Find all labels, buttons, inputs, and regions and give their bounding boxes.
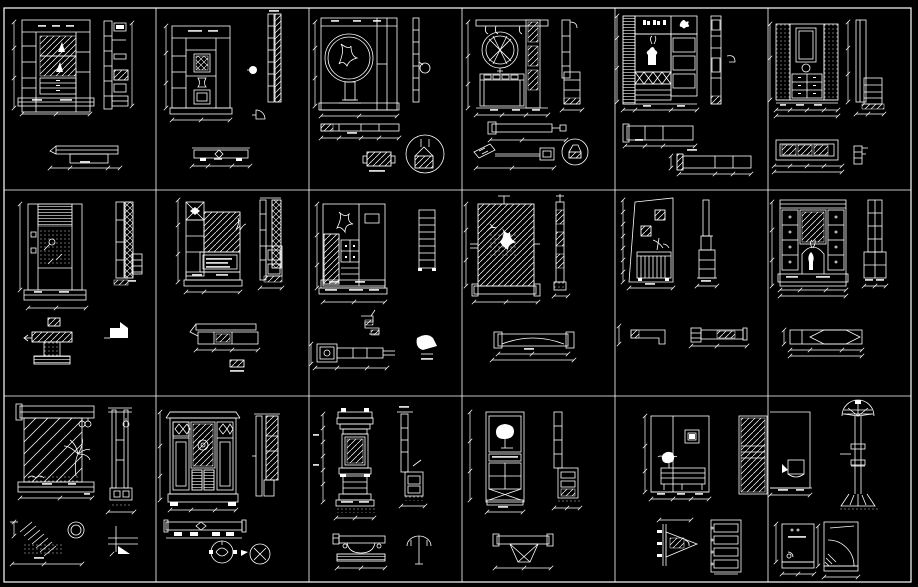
dim-text-glyph — [208, 30, 218, 32]
cad-rect — [338, 412, 372, 418]
cad-rect — [627, 126, 693, 140]
dimension-line — [643, 414, 647, 494]
dimension-line — [617, 324, 621, 346]
cad-rect — [408, 486, 420, 493]
hatch-diagonal — [711, 96, 721, 104]
cad-rect — [343, 429, 367, 434]
cad-fill — [813, 77, 816, 78]
hatch-dots — [554, 282, 566, 290]
cad-line — [825, 562, 829, 566]
cad-rect — [712, 20, 720, 30]
hatch-diagonal — [415, 156, 433, 168]
cad-fill — [209, 550, 213, 554]
cad-path — [485, 26, 488, 34]
cad-silhouette — [190, 207, 200, 215]
hatch-dots — [26, 474, 80, 482]
cad-fill — [190, 532, 198, 536]
drawing-cell-corner-display-unit[interactable] — [176, 198, 284, 372]
hatch-dots — [44, 342, 60, 356]
hatch-dots — [110, 502, 132, 507]
dimension-line — [466, 20, 470, 110]
dimension-line — [552, 294, 570, 298]
cad-rect — [671, 34, 697, 96]
dim-text-glyph — [492, 456, 518, 458]
dimension-line — [772, 170, 844, 174]
cad-line — [24, 418, 36, 430]
dim-text-glyph — [68, 483, 76, 485]
dimension-line — [315, 202, 319, 290]
cad-fill — [813, 85, 816, 86]
dim-text-glyph — [645, 283, 655, 285]
cad-rect — [691, 328, 701, 342]
cad-path — [788, 474, 804, 477]
dim-text-glyph — [192, 274, 202, 276]
cad-circle — [711, 563, 713, 565]
cad-fill — [643, 20, 646, 25]
hatch-dots — [38, 228, 72, 266]
cad-rect — [492, 124, 552, 132]
hatch-diagonal — [371, 330, 379, 335]
dimension-line — [474, 113, 550, 117]
cad-circle — [68, 522, 84, 538]
cad-fill — [657, 21, 660, 25]
dimension-line — [768, 493, 812, 497]
hatch-dots — [838, 506, 878, 510]
cad-rect — [114, 491, 120, 497]
hatch-diagonal — [32, 332, 72, 342]
cad-circle — [343, 544, 347, 548]
cad-fill — [638, 278, 642, 281]
hatch-diagonal — [862, 104, 884, 109]
hatch-diagonal — [556, 254, 564, 268]
cad-rect — [176, 442, 186, 486]
dimension-line — [10, 562, 84, 566]
dim-text-glyph — [206, 266, 230, 268]
dimension-line — [468, 410, 472, 502]
cad-rect — [714, 560, 738, 568]
cad-rect — [186, 220, 204, 276]
cad-fill — [200, 158, 206, 161]
cad-path — [810, 330, 860, 344]
cad-silhouette — [782, 464, 788, 473]
dimension-line — [176, 198, 180, 284]
hatch-diagonal — [561, 489, 575, 496]
cad-circle — [835, 246, 837, 248]
cad-rect — [782, 562, 814, 568]
cad-rect — [242, 520, 246, 532]
dimension-line — [621, 108, 699, 112]
cad-rect — [173, 422, 189, 490]
cad-silhouette — [241, 550, 248, 556]
cad-circle — [791, 529, 793, 531]
drawing-cell-four-door-wardrobe[interactable] — [158, 410, 280, 564]
drawing-cell-dresser-mirror[interactable] — [768, 20, 886, 174]
hatch-diagonal — [802, 212, 824, 242]
dim-text-glyph — [349, 289, 363, 291]
cad-sheet[interactable] — [0, 0, 918, 587]
cad-path — [629, 198, 673, 282]
cad-rect — [711, 16, 721, 104]
cad-path — [497, 68, 503, 73]
hatch-diagonal — [564, 98, 580, 104]
cad-fill — [813, 93, 816, 94]
dim-text-glyph — [677, 493, 685, 495]
cad-rect — [339, 468, 371, 474]
dim-tick — [110, 552, 114, 556]
cad-rect — [220, 442, 230, 486]
hatch-diagonal — [569, 152, 581, 158]
cad-fill — [56, 90, 60, 91]
cad-fill — [665, 278, 669, 281]
cad-rect — [851, 460, 865, 465]
drawing-cell-trellis-screen-palm[interactable] — [10, 404, 138, 566]
cad-path — [727, 56, 735, 62]
cad-rect — [474, 286, 536, 294]
dim-text-glyph — [355, 281, 365, 283]
drawing-cell-wall-unit-niche[interactable] — [615, 14, 753, 176]
cad-rect — [851, 444, 865, 449]
dimension-line — [12, 20, 16, 110]
cad-rect — [493, 75, 500, 79]
cad-rect — [365, 214, 379, 223]
hatch-dots — [490, 234, 516, 258]
dim-text-glyph — [695, 493, 703, 495]
cad-line — [830, 526, 854, 528]
cad-rect — [497, 536, 549, 544]
cad-rect — [651, 416, 709, 492]
dim-text-glyph — [369, 289, 379, 291]
cad-rect — [413, 18, 419, 102]
hatch-ribs — [337, 554, 385, 561]
dimension-line — [130, 21, 134, 108]
dimension-line — [496, 352, 570, 356]
cad-rect — [778, 274, 848, 282]
cad-line — [24, 418, 48, 442]
hatch-diagonal — [230, 360, 244, 367]
dimension-line — [822, 575, 860, 579]
hatch-diagonal — [275, 14, 281, 102]
cad-rect — [701, 236, 711, 250]
cad-rect — [112, 410, 116, 488]
dim-text-glyph — [796, 104, 804, 106]
dimension-line — [782, 328, 786, 346]
cad-rect — [712, 58, 720, 72]
dimension-line — [788, 348, 864, 352]
hatch-diagonal — [782, 145, 796, 155]
cad-fill — [341, 408, 346, 412]
hatch-diagonal — [528, 46, 538, 66]
cad-rect — [196, 324, 256, 330]
dimension-line — [309, 342, 313, 366]
hatch-diagonal — [741, 418, 765, 492]
cad-rect — [673, 38, 695, 52]
hatch-diagonal — [655, 210, 665, 220]
drawing-cell-cabinet-plant-ladder[interactable] — [309, 202, 437, 370]
hatch-dots — [776, 24, 790, 100]
dimension-line — [184, 290, 242, 294]
hatch-diagonal — [324, 234, 339, 284]
cad-rect — [268, 14, 274, 102]
cad-line — [850, 495, 854, 505]
cad-path — [510, 544, 538, 562]
cad-fill — [236, 158, 242, 161]
cad-rect — [560, 125, 566, 131]
cad-path — [347, 543, 375, 553]
drawing-cell-pedestal-column[interactable] — [313, 406, 431, 570]
cad-rect — [340, 424, 370, 429]
hatch-diagonal — [114, 280, 128, 285]
dimension-line — [313, 366, 389, 370]
cad-rect — [864, 78, 882, 104]
dim-text-glyph — [52, 25, 60, 27]
cad-rect — [363, 156, 367, 163]
cad-fill — [653, 20, 656, 25]
cad-circle — [328, 37, 370, 79]
dim-text-glyph — [60, 99, 72, 101]
cad-rect — [854, 146, 862, 164]
dimension-line — [485, 510, 525, 514]
dimension-line — [490, 358, 576, 362]
hatch-diagonal — [798, 145, 812, 155]
cad-circle — [789, 246, 791, 248]
cad-path — [215, 150, 223, 158]
cad-path — [337, 212, 353, 232]
dimension-line — [474, 166, 556, 170]
cad-path — [569, 145, 581, 152]
dimension-line — [190, 164, 252, 168]
hatch-diagonal — [216, 334, 230, 342]
cad-rect — [543, 151, 551, 157]
dim-text-glyph — [788, 536, 806, 538]
dimension-line — [319, 136, 401, 140]
dim-text-glyph — [214, 158, 222, 160]
dim-text-glyph — [490, 109, 498, 111]
cad-fill — [798, 85, 801, 86]
cad-path — [175, 424, 183, 434]
drawing-cell-hall-stand-wreath[interactable] — [466, 20, 588, 170]
cad-path — [196, 522, 206, 530]
dim-text-glyph — [796, 489, 804, 491]
dim-text-glyph — [32, 99, 42, 101]
cad-silhouette — [417, 335, 437, 350]
cad-line — [826, 558, 832, 564]
drawing-cell-frosted-door-partition[interactable] — [18, 202, 142, 364]
dimension-line — [18, 202, 22, 292]
hatch-diagonal — [266, 416, 278, 480]
cad-circle — [711, 539, 713, 541]
cad-rect — [498, 334, 568, 346]
cad-rect — [502, 75, 509, 79]
hatch-diagonal — [48, 318, 60, 326]
hatch-diagonal — [40, 56, 76, 76]
cad-fill — [353, 256, 355, 258]
cad-rect — [114, 84, 126, 92]
hatch-diagonal — [556, 232, 564, 246]
dim-text-glyph — [524, 348, 534, 350]
dimension-line — [560, 108, 584, 112]
cad-rect — [168, 494, 238, 502]
dim-text-glyph — [814, 104, 822, 106]
cad-fill — [233, 550, 237, 554]
cad-rect — [260, 200, 266, 280]
hatch-diagonal — [40, 36, 76, 56]
cad-rect — [788, 460, 804, 474]
dimension-line — [774, 522, 778, 564]
dim-text-glyph — [313, 464, 319, 466]
cad-rect — [799, 31, 813, 59]
cad-line — [862, 495, 866, 505]
hatch-diagonal — [528, 70, 538, 90]
cad-rect — [256, 416, 262, 496]
dim-text-glyph — [230, 370, 244, 372]
hatch-cross — [196, 56, 208, 70]
cad-rect — [703, 200, 709, 236]
cad-line — [371, 310, 375, 316]
cad-path — [216, 548, 228, 556]
cad-circle — [835, 216, 837, 218]
cad-silhouette — [808, 252, 813, 270]
drawing-cell-chest-arch-niche[interactable] — [770, 200, 888, 358]
cad-circle — [835, 261, 837, 263]
dimension-line — [464, 202, 468, 288]
dim-text-glyph — [677, 105, 685, 107]
cad-path — [651, 36, 656, 44]
cad-rect — [743, 328, 747, 340]
cad-fill — [345, 245, 347, 247]
drawing-cell-moon-circle-panel[interactable] — [313, 18, 444, 173]
cad-fill — [432, 268, 436, 271]
drawing-cell-panel-cabinet-inset[interactable] — [164, 10, 281, 168]
hatch-dots — [824, 24, 838, 100]
dimension-line — [488, 138, 568, 142]
dim-text-glyph — [66, 25, 74, 27]
cad-rect — [487, 500, 523, 505]
dimension-line — [194, 348, 260, 352]
drawing-cell-glass-display-cabinet[interactable] — [12, 20, 134, 170]
cad-path — [570, 22, 577, 28]
cad-rect — [184, 280, 242, 286]
cad-circle — [711, 527, 713, 529]
dim-text-glyph — [512, 109, 520, 111]
cad-fill — [226, 532, 234, 536]
dimension-line — [627, 286, 675, 290]
cad-path — [519, 26, 522, 34]
dimension-line — [158, 410, 162, 502]
cad-canvas[interactable] — [0, 0, 918, 587]
drawing-cell-hatched-screen-plant[interactable] — [464, 194, 576, 362]
cad-rect — [197, 93, 207, 101]
drawing-cell-leaning-mirror-radiator[interactable] — [617, 198, 749, 348]
dimension-line — [816, 524, 820, 568]
cad-circle — [789, 231, 791, 233]
cad-rect — [132, 254, 142, 274]
cad-path — [828, 540, 854, 566]
dim-text-glyph — [498, 506, 508, 508]
cad-path — [339, 44, 357, 66]
cad-rect — [623, 124, 629, 142]
cad-line — [510, 544, 530, 562]
cad-rect — [345, 82, 355, 100]
cad-rect — [635, 84, 671, 100]
cad-rect — [856, 20, 866, 102]
dim-text-glyph — [38, 25, 46, 27]
hatch-diagonal — [365, 320, 373, 325]
cad-circle — [835, 231, 837, 233]
dimension-line — [493, 566, 553, 570]
hatch-diagonal — [641, 226, 651, 236]
cad-rect — [337, 348, 383, 358]
hatch-ribs — [623, 16, 635, 104]
cad-rect — [320, 347, 334, 359]
cad-circle — [787, 554, 791, 558]
drawing-cell-corner-coat-rack[interactable] — [768, 400, 878, 579]
dimension-line — [649, 497, 711, 501]
cad-line — [413, 460, 421, 466]
cad-rect — [264, 480, 274, 496]
hatch-ribs — [204, 470, 214, 490]
hatch-diagonal — [631, 330, 639, 338]
sheet-border — [4, 8, 911, 582]
cad-rect — [343, 476, 367, 494]
cad-rect — [714, 536, 738, 544]
cad-rect — [790, 330, 862, 344]
cad-rect — [114, 54, 126, 59]
drawing-cell-bedroom-wall-sideboard[interactable] — [643, 414, 767, 574]
cad-rect — [123, 491, 129, 497]
cad-fill — [855, 400, 861, 404]
cad-path — [474, 144, 495, 158]
cad-rect — [170, 108, 232, 114]
dimension-line — [778, 294, 848, 298]
hatch-diagonal — [670, 538, 684, 548]
cad-rect — [31, 248, 36, 253]
cad-rect — [194, 150, 248, 158]
hatch-diagonal — [717, 331, 735, 338]
cad-rect — [484, 75, 491, 79]
hatch-diagonal — [264, 276, 282, 282]
cad-rect — [562, 20, 570, 78]
dim-text-glyph — [347, 132, 357, 134]
cad-rect — [561, 481, 575, 487]
cad-fill — [56, 80, 60, 81]
hatch-ribs — [192, 470, 202, 490]
cad-silhouette — [110, 322, 128, 338]
cad-fill — [116, 25, 124, 29]
dim-text-glyph — [34, 291, 42, 293]
cad-circle — [420, 63, 430, 73]
hatch-dots — [22, 544, 62, 554]
cad-rect — [337, 418, 373, 424]
dimension-line — [770, 200, 774, 288]
cad-fill — [798, 77, 801, 78]
cad-fill — [364, 408, 369, 412]
dim-text-glyph — [421, 358, 433, 360]
hatch-diagonal — [347, 439, 363, 463]
dim-text-glyph — [34, 557, 44, 559]
dim-text-glyph — [876, 279, 884, 281]
cad-fill — [798, 93, 801, 94]
dimension-line — [168, 508, 238, 512]
cad-rect — [699, 250, 715, 278]
drawing-cell-pier-cabinet-tree[interactable] — [468, 410, 582, 570]
cad-path — [502, 338, 564, 344]
dimension-line — [788, 354, 864, 358]
hatch-diagonal — [367, 152, 391, 166]
dimension-line — [399, 504, 427, 508]
hatch-diagonal — [556, 210, 564, 224]
cad-rect — [339, 536, 385, 543]
dim-text-glyph — [80, 161, 90, 163]
